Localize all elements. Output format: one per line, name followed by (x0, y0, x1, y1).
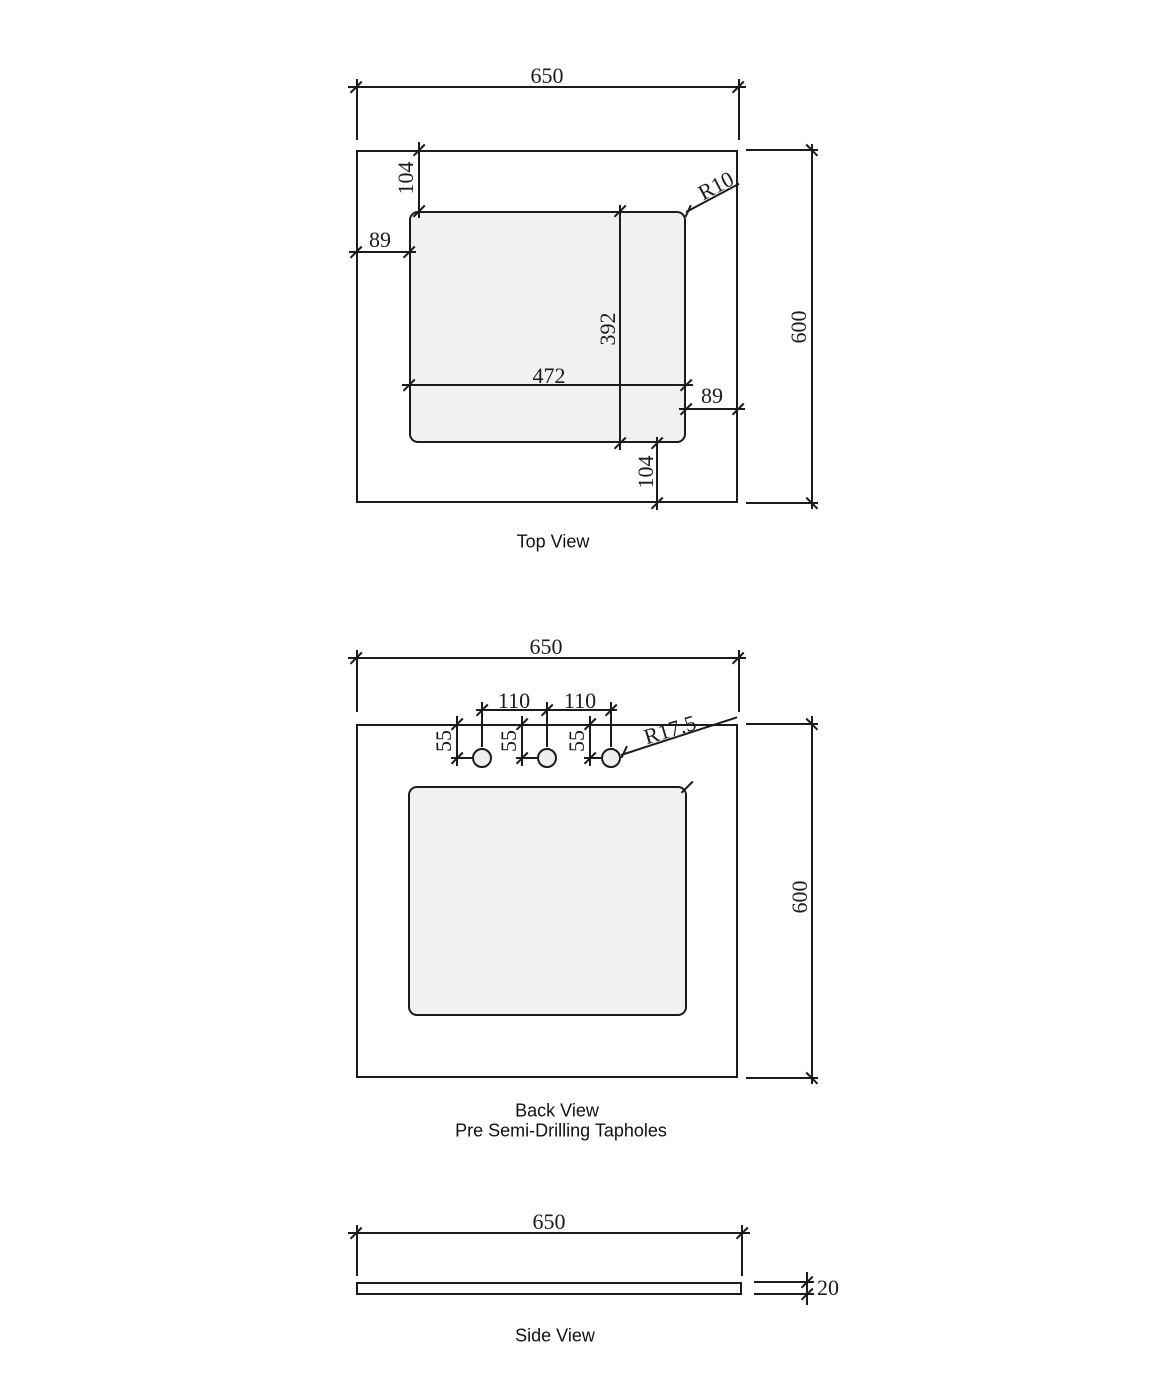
back-recess (408, 786, 687, 1016)
dim-back-height: 600 (789, 881, 811, 914)
top-view-caption: Top View (517, 532, 590, 553)
dim-hole-offset-3: 55 (566, 730, 588, 752)
dim-thickness: 20 (817, 1277, 839, 1299)
dim-cutout-width: 472 (533, 365, 566, 387)
dim-top-width: 650 (531, 65, 564, 87)
extension-line (746, 723, 818, 725)
back-view-subcaption: Pre Semi-Drilling Tapholes (455, 1121, 667, 1142)
extension-line (738, 650, 740, 712)
extension-line (746, 1077, 818, 1079)
dim-offset-right: 89 (701, 385, 723, 407)
dim-line-top-height (811, 144, 813, 509)
back-view-caption: Back View (515, 1101, 599, 1122)
extension-line (746, 149, 818, 151)
drawing-canvas: 650 104 89 472 392 89 104 (0, 0, 1171, 1400)
dim-hole-offset-2: 55 (498, 730, 520, 752)
dim-offset-top: 104 (395, 162, 417, 195)
dim-hole-offset-1: 55 (433, 730, 455, 752)
dim-offset-left: 89 (369, 229, 391, 251)
taphole-1 (472, 748, 492, 768)
taphole-2 (537, 748, 557, 768)
dim-side-width: 650 (533, 1211, 566, 1233)
dim-hole-spacing-right: 110 (564, 690, 596, 712)
extension-line (746, 502, 818, 504)
side-view-caption: Side View (515, 1326, 595, 1347)
taphole-3 (601, 748, 621, 768)
extension-line (738, 79, 740, 140)
benchtop-outline-side (356, 1282, 742, 1295)
extension-line (584, 757, 601, 759)
dim-hole-spacing-left: 110 (498, 690, 530, 712)
dim-line-thickness (806, 1272, 808, 1305)
dim-back-width: 650 (530, 636, 563, 658)
dim-offset-bottom: 104 (635, 456, 657, 489)
dim-top-height: 600 (788, 311, 810, 344)
extension-line (356, 650, 358, 712)
extension-line (356, 79, 358, 140)
sink-cutout (409, 211, 686, 443)
dim-cutout-height: 392 (597, 313, 619, 346)
dim-line-offset-top (418, 142, 420, 218)
